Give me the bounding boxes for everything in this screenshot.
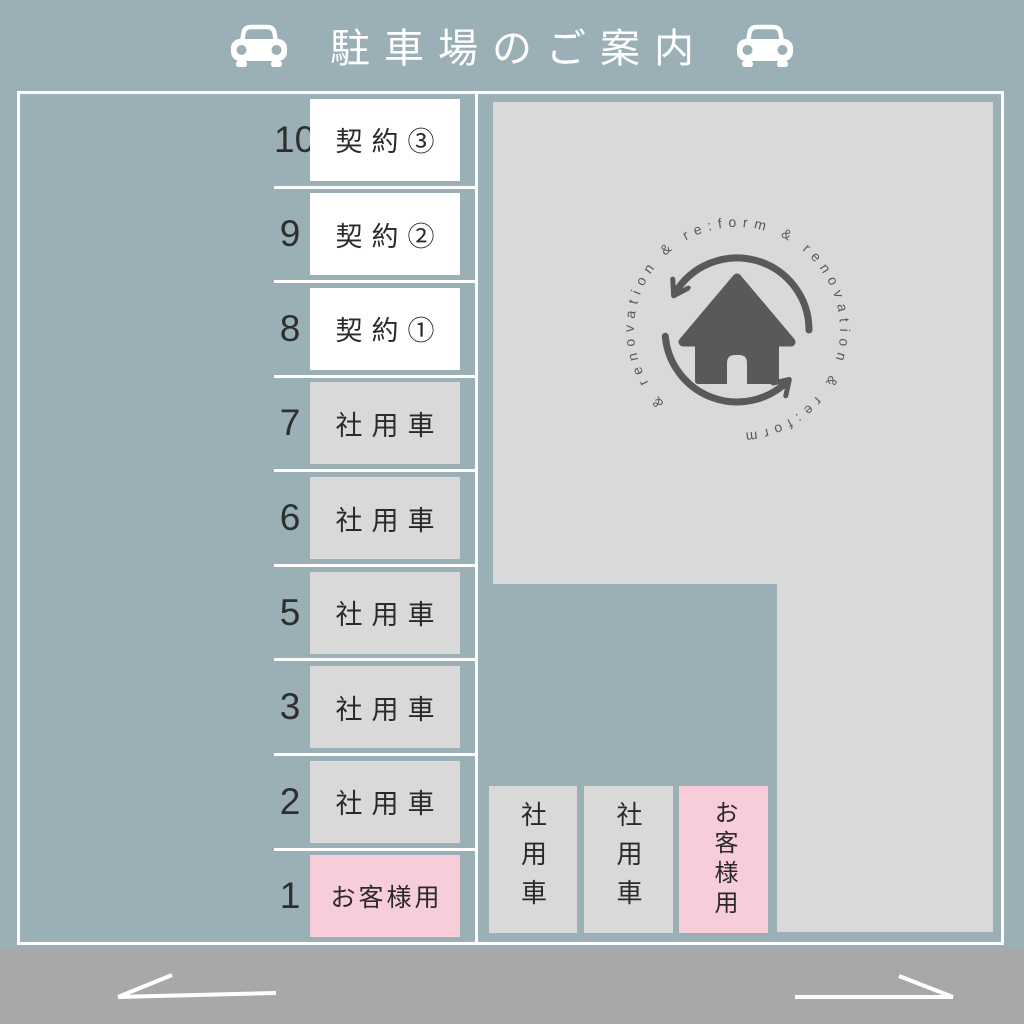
parking-spot: 社用車 bbox=[489, 786, 577, 933]
spot-number: 7 bbox=[274, 402, 306, 444]
spot-label: 社用車 bbox=[327, 782, 444, 821]
parking-spot-row: 5 社用車 bbox=[274, 564, 475, 659]
parking-spot: 契約① bbox=[310, 288, 460, 370]
page-title: 駐車場のご案内 bbox=[316, 16, 708, 74]
spot-label: 契約① bbox=[327, 309, 444, 348]
parking-spot: 社用車 bbox=[310, 572, 460, 654]
parking-spot-row: 9 契約② bbox=[274, 186, 475, 281]
parking-spot-row: 7 社用車 bbox=[274, 375, 475, 470]
spot-number: 6 bbox=[274, 497, 306, 539]
parking-spot: 社用車 bbox=[310, 761, 460, 843]
parking-spot: 契約② bbox=[310, 193, 460, 275]
car-icon bbox=[736, 23, 794, 68]
title-bar: 駐車場のご案内 bbox=[0, 14, 1024, 76]
parking-spot: 契約③ bbox=[310, 99, 460, 181]
parking-spot: 社用車 bbox=[310, 666, 460, 748]
car-icon bbox=[230, 23, 288, 68]
spot-label: 社用車 bbox=[327, 404, 444, 443]
parking-spot-row: 8 契約① bbox=[274, 280, 475, 375]
parking-spot-row: 6 社用車 bbox=[274, 469, 475, 564]
parking-spot-row: 2 社用車 bbox=[274, 753, 475, 848]
parking-guide-poster: 駐車場のご案内 & renovation bbox=[0, 0, 1024, 1024]
spot-label: 社用車 bbox=[515, 801, 552, 918]
spot-number: 2 bbox=[274, 781, 306, 823]
parking-spot-row: 10 契約③ bbox=[274, 94, 475, 186]
spot-label: 契約② bbox=[327, 215, 444, 254]
spot-label: お客様用 bbox=[327, 878, 442, 914]
parking-lot-map: & renovation & re:form & renovation & re… bbox=[17, 91, 1004, 945]
spot-label: お客様用 bbox=[706, 800, 741, 920]
spot-label: 社用車 bbox=[327, 499, 444, 538]
parking-spot: お客様用 bbox=[310, 855, 460, 937]
spot-number: 1 bbox=[274, 875, 306, 917]
spot-number: 9 bbox=[274, 213, 306, 255]
parking-spot: 社用車 bbox=[310, 382, 460, 464]
road bbox=[0, 949, 1024, 1024]
renovation-logo: & renovation & re:form & renovation & re… bbox=[607, 200, 867, 460]
spot-number: 5 bbox=[274, 592, 306, 634]
spot-number: 3 bbox=[274, 686, 306, 728]
parking-spot: 社用車 bbox=[310, 477, 460, 559]
parking-spot-row: 1 お客様用 bbox=[274, 848, 475, 943]
road-arrow-left-icon bbox=[114, 967, 282, 1003]
house-icon bbox=[683, 278, 791, 384]
parking-spot: お客様用 bbox=[679, 786, 768, 933]
parking-spot-row: 3 社用車 bbox=[274, 658, 475, 753]
spot-label: 社用車 bbox=[610, 801, 647, 918]
spot-number: 10 bbox=[274, 119, 306, 161]
left-spot-column: 10 契約③ 9 契約② 8 契約① 7 社用車 6 社用車 5 社用車 bbox=[274, 94, 475, 942]
spot-label: 社用車 bbox=[327, 688, 444, 727]
parking-spot: 社用車 bbox=[584, 786, 673, 933]
spot-label: 社用車 bbox=[327, 593, 444, 632]
lane-divider-line bbox=[475, 94, 478, 942]
spot-label: 契約③ bbox=[327, 120, 444, 159]
road-arrow-right-icon bbox=[789, 967, 957, 1003]
spot-number: 8 bbox=[274, 308, 306, 350]
building-footprint-lower bbox=[777, 584, 993, 932]
